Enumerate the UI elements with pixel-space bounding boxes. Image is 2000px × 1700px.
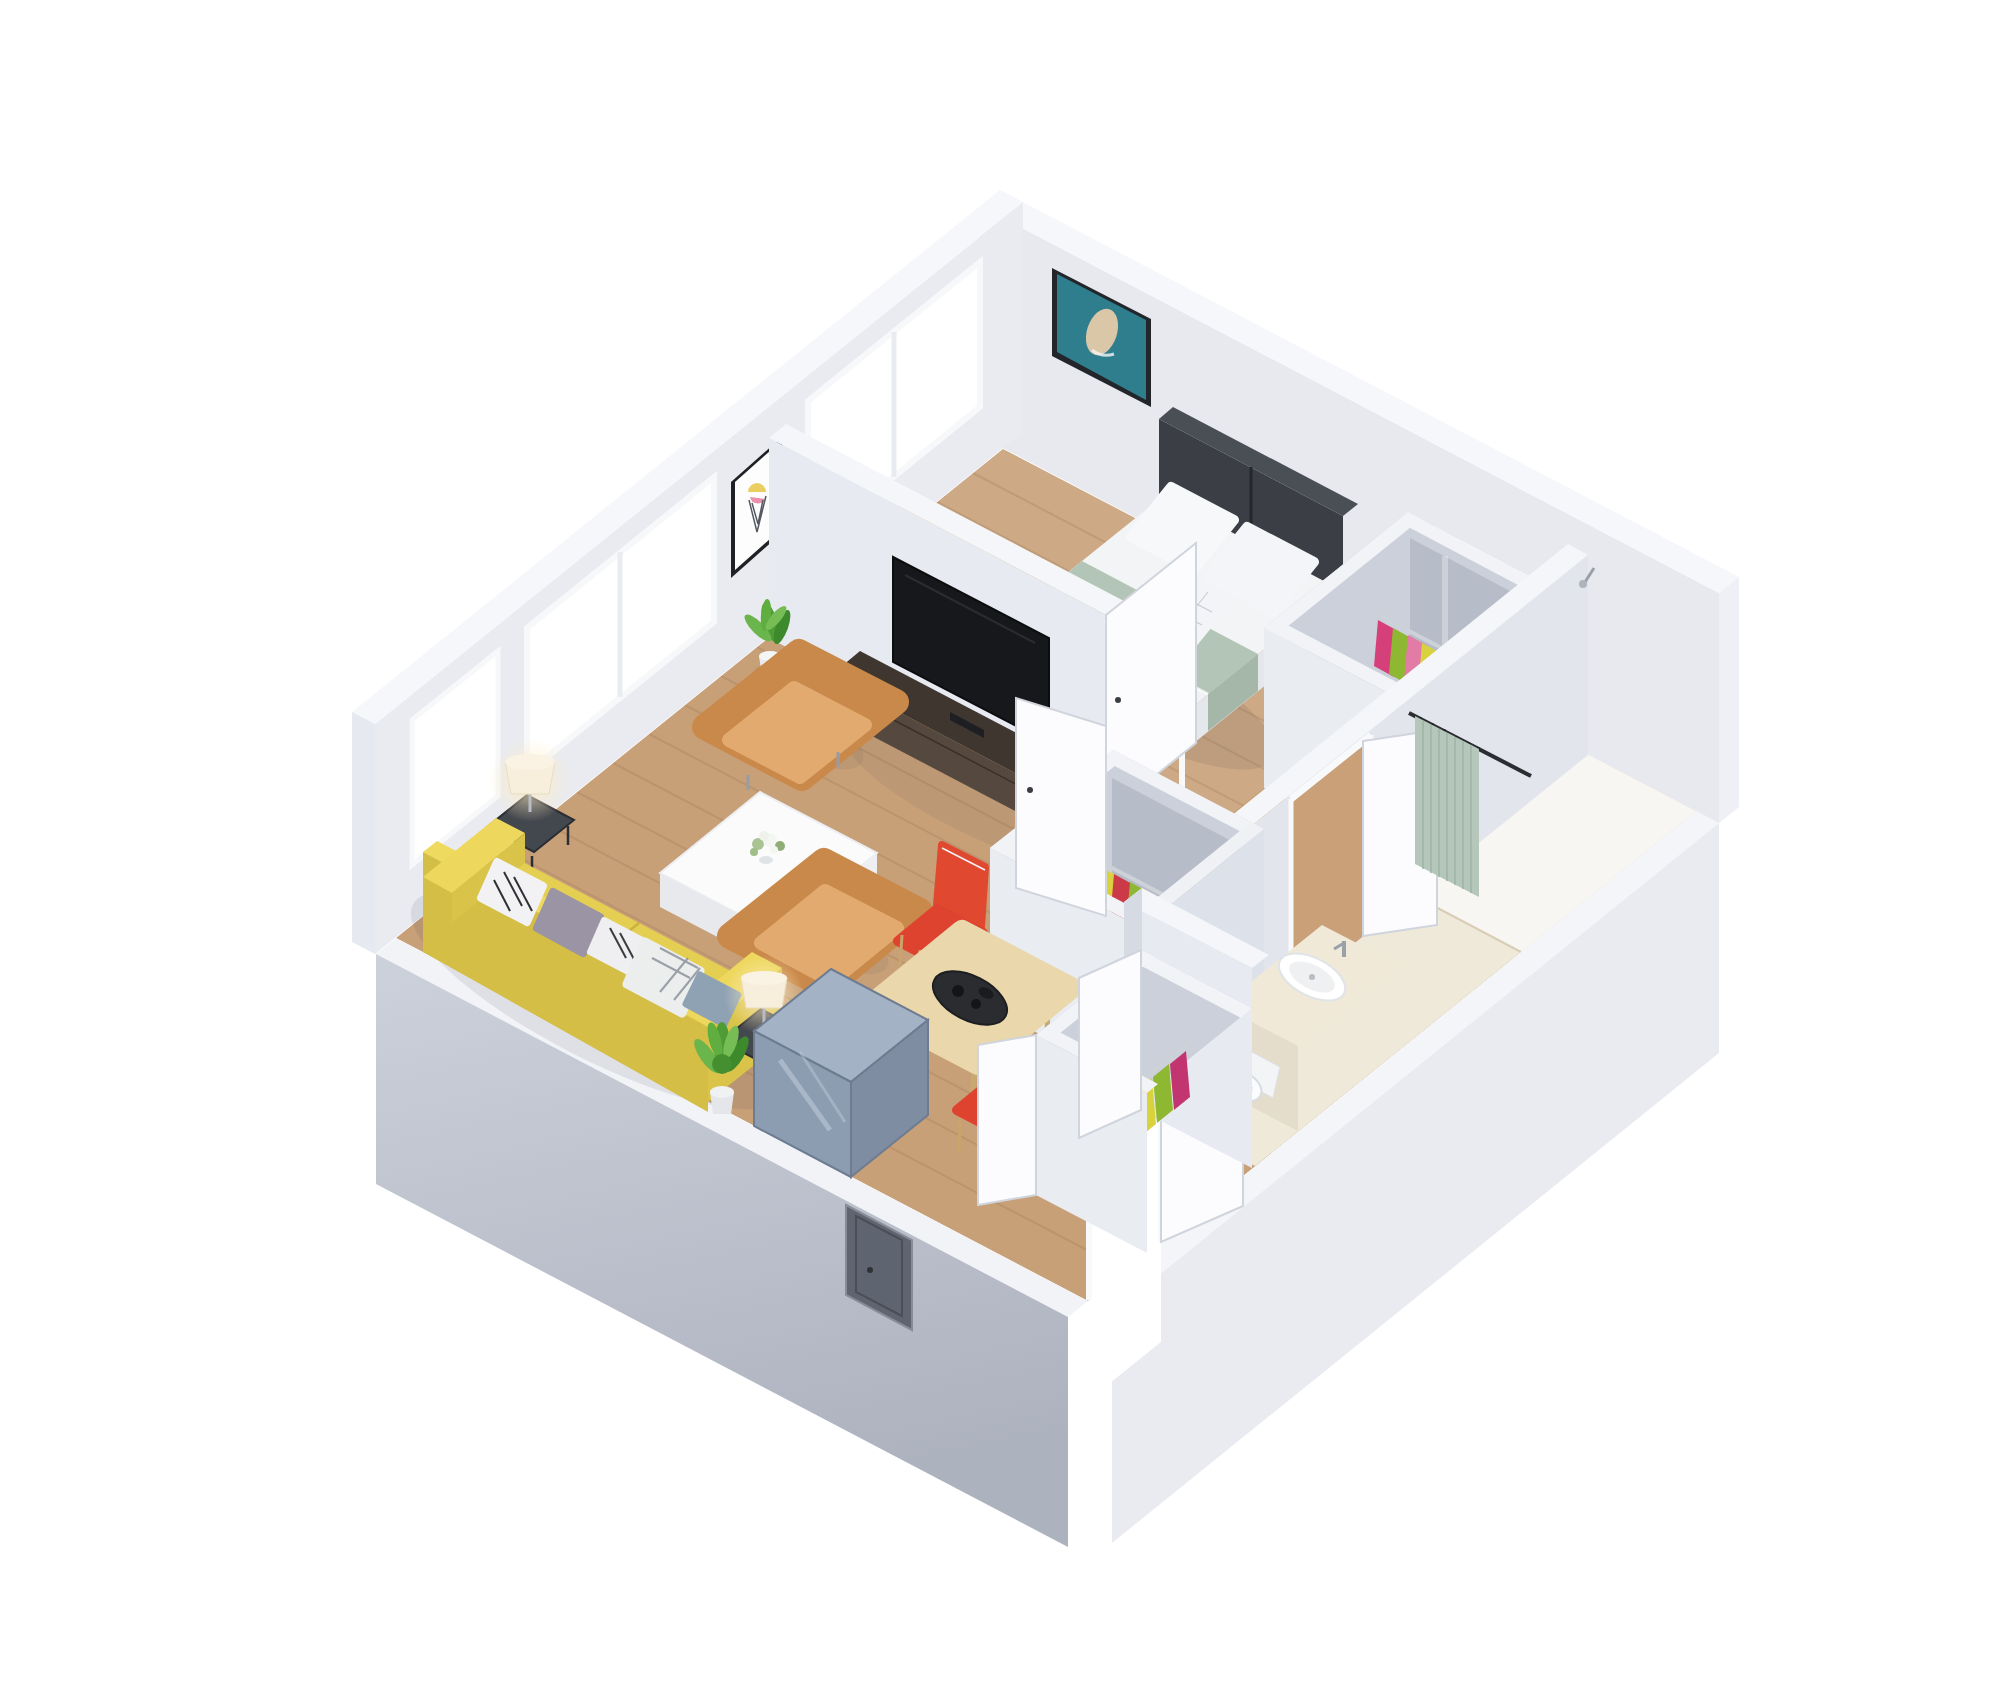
curtain-folds (1423, 721, 1471, 893)
plant-pot-rim (710, 1086, 734, 1098)
door-handle (1027, 787, 1033, 793)
closet-door-leaf (1079, 950, 1141, 1138)
hallway-door-leaf (1016, 698, 1106, 916)
lamp-shade-top (505, 754, 555, 770)
wall-corner-cap-east (1719, 577, 1739, 823)
door-handle (1115, 697, 1121, 703)
sink-drain (1309, 974, 1315, 980)
utility-panel-handle (867, 1267, 873, 1273)
tray-cup (952, 985, 964, 997)
tray-cup (971, 999, 981, 1009)
closet-door-leaf (978, 1035, 1036, 1205)
floor-plan-render (0, 0, 2000, 1700)
hallway-door (1016, 698, 1106, 916)
shower-head (1579, 580, 1587, 588)
lamp-shade-top (741, 971, 787, 985)
wall-corner-cap-west (352, 712, 375, 954)
